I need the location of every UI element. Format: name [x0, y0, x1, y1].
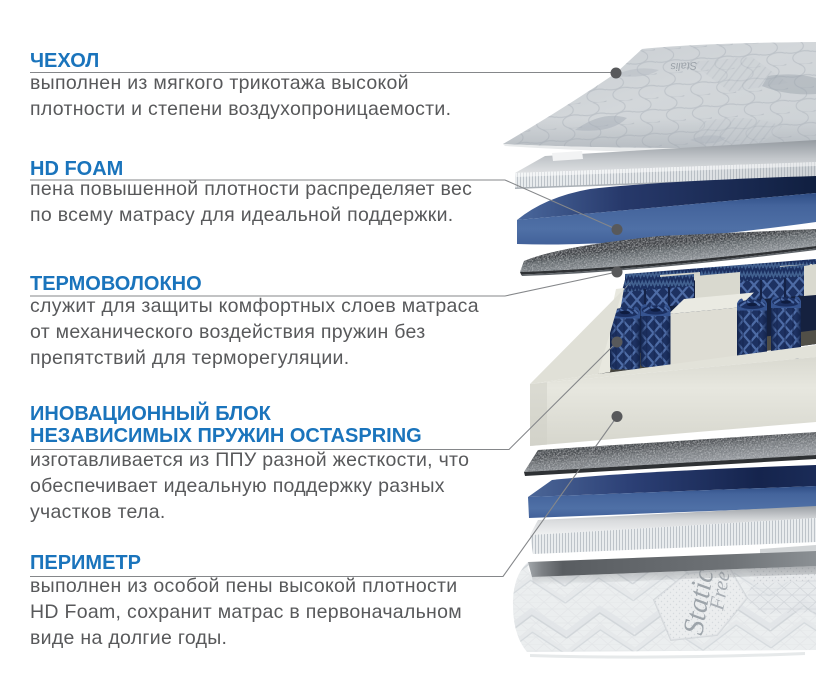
svg-text:Stalis: Stalis — [669, 59, 697, 72]
